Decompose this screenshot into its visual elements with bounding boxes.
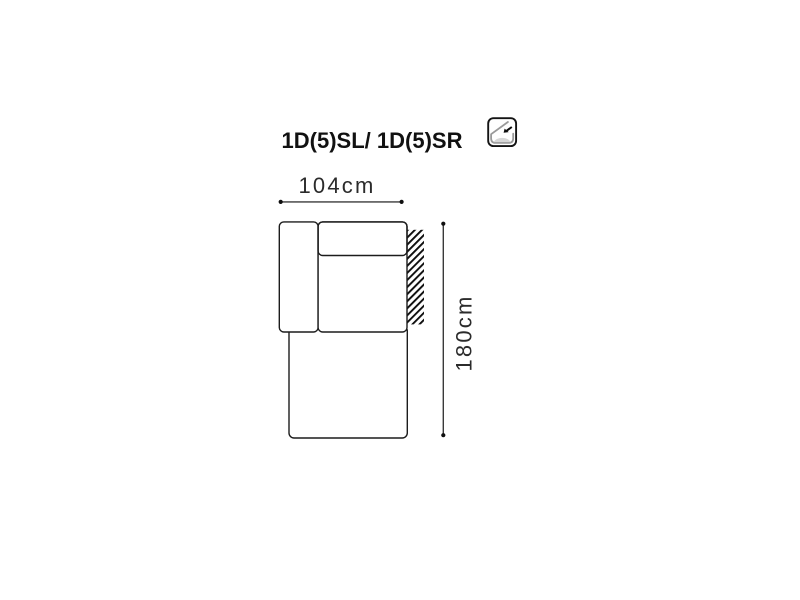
svg-text:180cm: 180cm [452,294,477,371]
svg-text:104cm: 104cm [298,173,375,198]
